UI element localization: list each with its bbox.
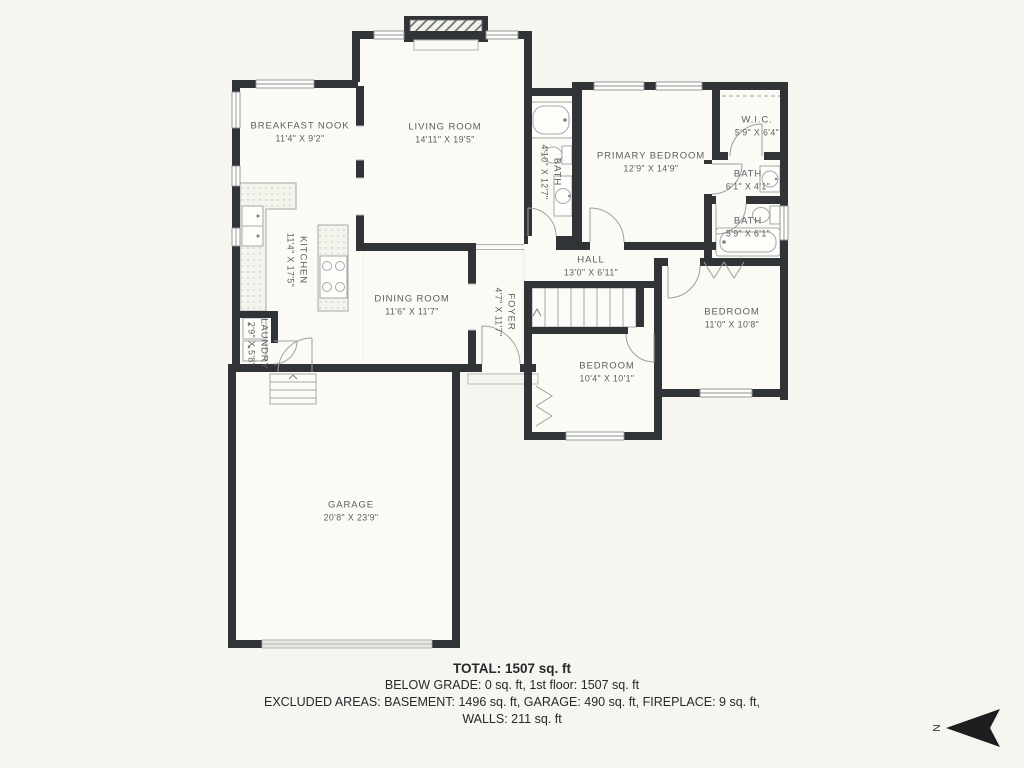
floor-plan-drawing: N	[0, 0, 1024, 768]
excluded-areas-text: EXCLUDED AREAS: BASEMENT: 1496 sq. ft, G…	[0, 694, 1024, 711]
stove-icon	[320, 256, 347, 298]
garage-door	[262, 640, 432, 648]
total-area-text: TOTAL: 1507 sq. ft	[0, 660, 1024, 677]
stairs-main	[532, 288, 636, 327]
stairs-basement	[270, 374, 316, 404]
below-grade-text: BELOW GRADE: 0 sq. ft, 1st floor: 1507 s…	[0, 677, 1024, 694]
room-floors	[234, 37, 786, 642]
floor-plan-canvas: N BREAKFAST NOOK 11'4" X 9'2" LIVING ROO…	[0, 0, 1024, 768]
walls-area-text: WALLS: 211 sq. ft	[0, 711, 1024, 728]
ensuite-bath-fixtures	[760, 166, 780, 192]
washer-dryer-icon	[243, 318, 266, 361]
area-summary: TOTAL: 1507 sq. ft BELOW GRADE: 0 sq. ft…	[0, 660, 1024, 728]
